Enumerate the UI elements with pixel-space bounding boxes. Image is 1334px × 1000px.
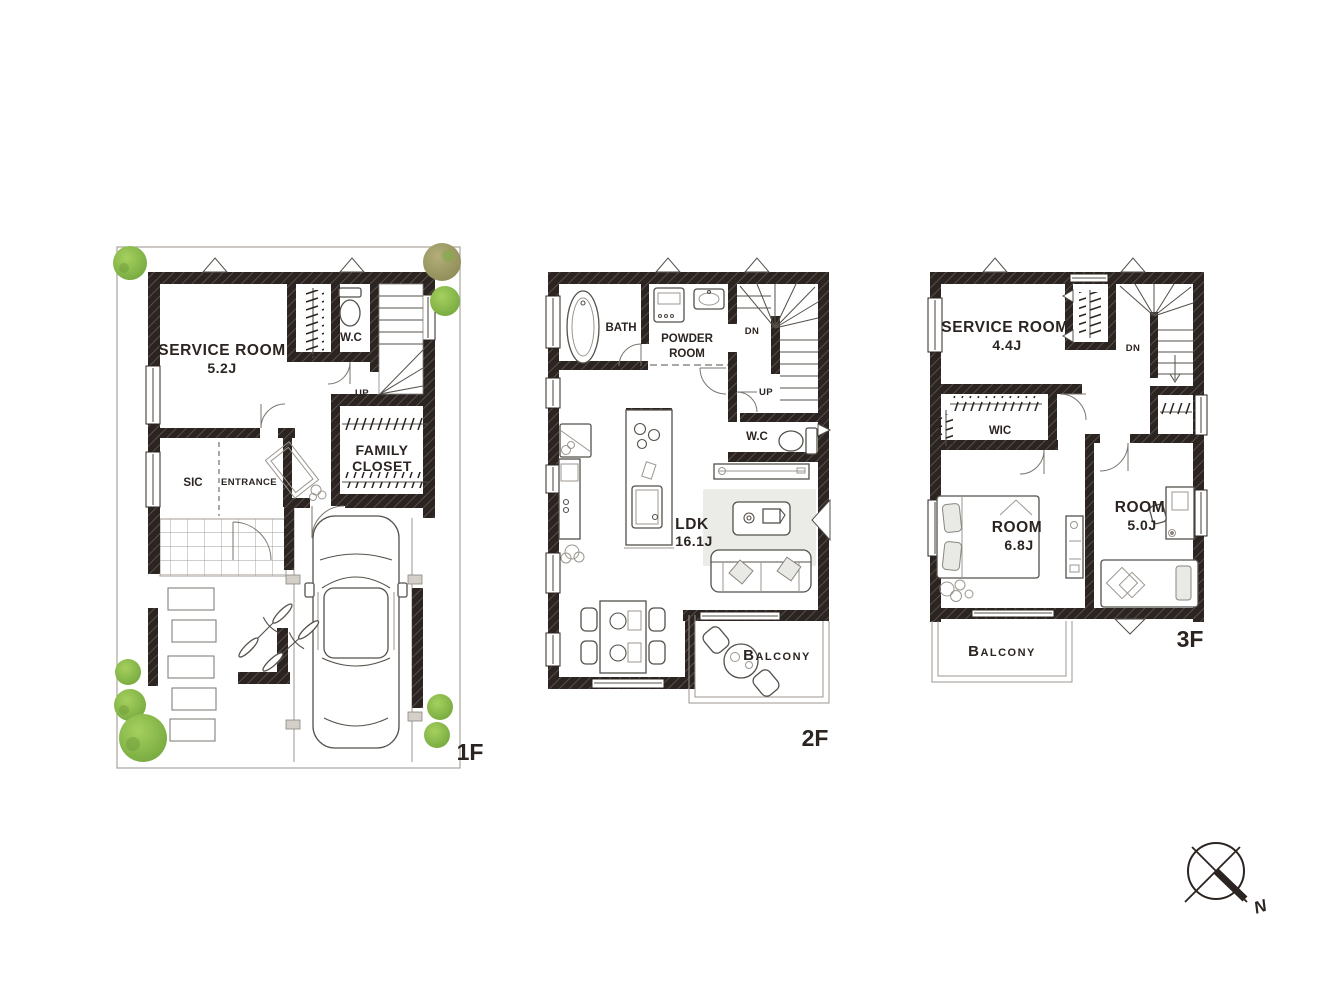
stairs-1f — [379, 284, 423, 394]
label-powder-1: POWDER — [661, 333, 713, 345]
shelf-unit — [1066, 516, 1083, 578]
floor-label-3f: 3F — [1177, 626, 1204, 652]
label-up-1f: UP — [355, 388, 369, 399]
label-service-room-1f: SERVICE ROOM — [158, 342, 286, 359]
bicycle-icon — [232, 597, 300, 665]
toilet-icon — [779, 428, 817, 454]
label-service-room-size-1f: 5.2J — [207, 360, 236, 376]
closet-hangers-3f — [1079, 290, 1101, 338]
label-powder-2: ROOM — [669, 348, 705, 360]
balcony-chair — [751, 667, 782, 698]
floor-plan-2f: BATH POWDER ROOM DN UP W.C LDK 16.1J Bal… — [546, 258, 830, 751]
label-wic: WIC — [989, 425, 1011, 437]
label-sic: SIC — [183, 477, 202, 489]
label-balcony-2f: Balcony — [743, 647, 811, 664]
label-dn-2f: DN — [745, 326, 760, 337]
car — [305, 516, 407, 748]
washing-machine-icon — [654, 288, 684, 322]
flower-icon — [310, 485, 327, 501]
compass: N — [1185, 843, 1270, 918]
label-family-closet-2: CLOSET — [352, 458, 412, 474]
stepping-stones — [168, 588, 216, 741]
tv-board — [714, 464, 809, 479]
floor-plan-page: SERVICE ROOM 5.2J W.C UP SIC ENTRANCE FA… — [0, 0, 1334, 1000]
label-room-50-size: 5.0J — [1127, 517, 1156, 533]
toilet-icon — [339, 288, 361, 326]
wic-hangers — [938, 396, 1042, 446]
floor-label-1f: 1F — [457, 739, 484, 765]
label-balcony-3f: Balcony — [968, 643, 1036, 660]
kitchen-island — [624, 410, 674, 548]
closet-hangers-1f — [302, 288, 324, 358]
label-room-50: ROOM — [1115, 499, 1166, 516]
sofa — [711, 550, 811, 592]
floor-plan-1f: SERVICE ROOM 5.2J W.C UP SIC ENTRANCE FA… — [113, 243, 483, 768]
refrigerator-icon — [560, 424, 591, 457]
flower-icon — [940, 580, 973, 602]
pillow — [942, 541, 962, 571]
entrance-porch-tiles — [160, 519, 286, 576]
pillow — [942, 503, 962, 533]
compass-north-label: N — [1252, 896, 1270, 918]
small-closet-hangers — [1160, 403, 1193, 418]
label-service-room-size-3f: 4.4J — [992, 337, 1021, 353]
label-ldk-size: 16.1J — [675, 533, 713, 549]
label-service-room-3f: SERVICE ROOM — [941, 319, 1069, 336]
label-room-68-size: 6.8J — [1004, 537, 1033, 553]
label-family-closet-1: FAMILY — [355, 442, 408, 458]
dining-table — [581, 601, 665, 673]
label-up-2f: UP — [759, 387, 773, 398]
kitchen-counter — [559, 459, 580, 539]
vanity-sink-icon — [694, 289, 724, 309]
floor-plan-canvas: SERVICE ROOM 5.2J W.C UP SIC ENTRANCE FA… — [0, 0, 1334, 1000]
label-ldk: LDK — [675, 516, 709, 533]
single-bed — [1101, 560, 1198, 607]
chair — [649, 641, 665, 664]
label-bath: BATH — [605, 322, 636, 334]
vent-icon — [340, 258, 364, 272]
floor-plan-3f: SERVICE ROOM 4.4J DN WIC ROOM 6.8J ROOM … — [928, 258, 1207, 682]
label-dn-3f: DN — [1126, 343, 1141, 354]
label-entrance: ENTRANCE — [221, 477, 277, 488]
pillow — [1176, 566, 1191, 600]
chair — [581, 641, 597, 664]
coffee-table — [733, 502, 790, 535]
bathtub-icon — [567, 291, 599, 363]
chair — [649, 608, 665, 631]
label-wc-1f: W.C — [340, 332, 362, 344]
floor-label-2f: 2F — [802, 725, 829, 751]
label-wc-2f: W.C — [746, 431, 768, 443]
chair — [581, 608, 597, 631]
vent-icon — [203, 258, 227, 272]
label-room-68: ROOM — [992, 519, 1043, 536]
